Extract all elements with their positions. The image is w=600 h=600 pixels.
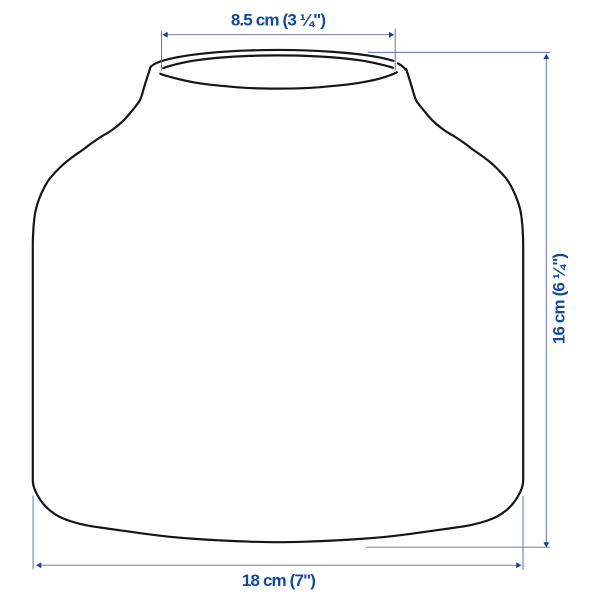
svg-text:8.5 cm (3 ¼"): 8.5 cm (3 ¼") [231, 10, 326, 29]
svg-text:18 cm (7"): 18 cm (7") [242, 571, 315, 590]
svg-text:16 cm (6 ¼"): 16 cm (6 ¼") [550, 254, 569, 345]
